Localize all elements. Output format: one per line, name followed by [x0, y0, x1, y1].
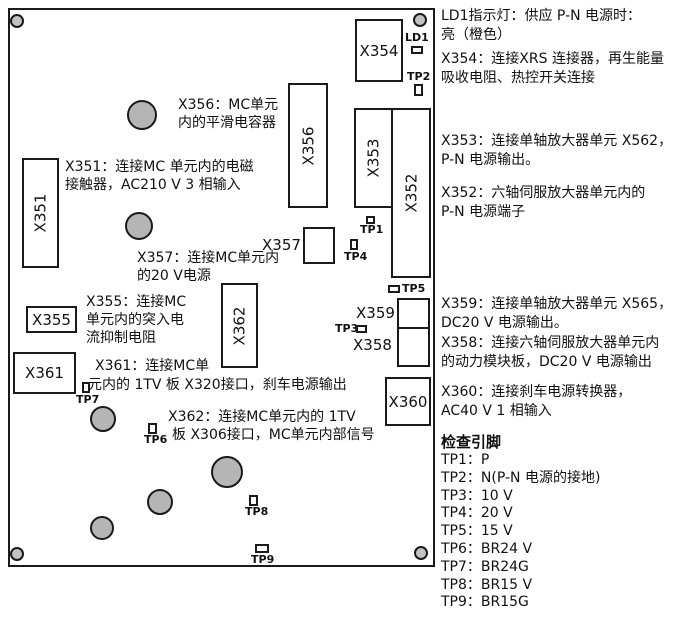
connector-x357-box	[303, 227, 335, 264]
annotation-x361-line1: X361：连接MC单	[95, 357, 209, 375]
mc-unit-board-diagram: X354 X356 X353 X352 X351 X355 X361 X362 …	[0, 0, 700, 625]
testpoint-tp2	[414, 84, 423, 96]
testpoint-tp6-label: TP6	[144, 433, 167, 446]
annotation-x357: X357：连接MC单元内 的20 V电源	[137, 249, 279, 285]
check-pin-item: TP4：20 V	[441, 505, 600, 523]
annotation-x362-line2: 板 X306接口，MC单元内部信号	[172, 426, 375, 444]
mounting-hole	[90, 406, 116, 432]
legend-note-x354: X354：连接XRS 连接器，再生能量 吸收电阻、热控开关连接	[441, 50, 700, 88]
annotation-x361-line2: 元内的 1TV 板 X320接口，刹车电源输出	[88, 376, 347, 394]
mounting-hole	[90, 516, 114, 540]
led-ld1-label: LD1	[405, 31, 429, 44]
led-ld1-indicator	[411, 46, 423, 54]
connector-x358-box	[397, 327, 430, 367]
connector-x356-label: X356	[299, 126, 317, 165]
connector-x352: X352	[391, 108, 431, 278]
connector-x353: X353	[354, 108, 393, 208]
corner-screw	[414, 546, 428, 560]
connector-x352-label: X352	[402, 174, 420, 213]
testpoint-tp8-label: TP8	[245, 505, 268, 518]
connector-x360-label: X360	[389, 393, 428, 411]
connector-x361: X361	[13, 352, 76, 394]
connector-x361-label: X361	[25, 364, 64, 382]
connector-x358-label: X358	[353, 336, 392, 354]
testpoint-tp5-label: TP5	[402, 282, 425, 295]
check-pin-item: TP6：BR24 V	[441, 541, 600, 559]
testpoint-tp9-label: TP9	[251, 553, 274, 566]
legend-note-x353: X353：连接单轴放大器单元 X562， P-N 电源输出。	[441, 132, 700, 170]
testpoint-tp1-label: TP1	[360, 223, 383, 236]
testpoint-tp4	[350, 239, 358, 250]
testpoint-tp3	[356, 325, 367, 333]
testpoint-tp2-label: TP2	[407, 70, 430, 83]
connector-x362-label: X362	[231, 306, 249, 345]
testpoint-tp9	[255, 544, 269, 553]
check-pin-item: TP7：BR24G	[441, 559, 600, 577]
mounting-hole	[125, 212, 153, 240]
legend-note-x359: X359：连接单轴放大器单元 X565， DC20 V 电源输出。	[441, 295, 700, 333]
annotation-x356: X356：MC单元 内的平滑电容器	[178, 96, 278, 132]
mounting-hole	[211, 456, 243, 488]
connector-x354: X354	[355, 19, 403, 82]
testpoint-tp3-label: TP3	[335, 322, 358, 335]
legend-note-x358: X358：连接六轴伺服放大器单元内 的动力模块板，DC20 V 电源输出	[441, 334, 700, 372]
mounting-hole	[147, 489, 173, 515]
connector-x351-label: X351	[32, 194, 50, 233]
check-pin-item: TP9：BR15G	[441, 594, 600, 612]
connector-x359-label: X359	[356, 304, 395, 322]
legend-note-x352: X352：六轴伺服放大器单元内的 P-N 电源端子	[441, 184, 700, 222]
check-pins-heading: 检查引脚	[441, 431, 501, 452]
check-pin-item: TP1：P	[441, 452, 600, 470]
corner-screw	[10, 14, 24, 28]
connector-x355: X355	[26, 306, 77, 333]
connector-x360: X360	[385, 377, 431, 426]
mounting-hole	[127, 100, 157, 130]
testpoint-tp5	[388, 285, 400, 293]
check-pin-item: TP8：BR15 V	[441, 577, 600, 595]
check-pin-item: TP5：15 V	[441, 523, 600, 541]
testpoint-tp7-label: TP7	[76, 393, 99, 406]
connector-x351: X351	[22, 158, 59, 268]
testpoint-tp4-label: TP4	[344, 250, 367, 263]
check-pins-list: TP1：P TP2：N(P-N 电源的接地) TP3：10 V TP4：20 V…	[441, 452, 600, 612]
check-pin-item: TP2：N(P-N 电源的接地)	[441, 470, 600, 488]
legend-note-x360: X360：连接刹车电源转换器， AC40 V 1 相输入	[441, 383, 700, 421]
legend-note-ld1: LD1指示灯：供应 P-N 电源时： 亮（橙色）	[441, 7, 700, 45]
annotation-x362-line1: X362：连接MC单元内的 1TV	[168, 408, 356, 426]
check-pin-item: TP3：10 V	[441, 488, 600, 506]
corner-screw	[413, 13, 427, 27]
corner-screw	[10, 547, 24, 561]
connector-x362: X362	[221, 283, 258, 368]
connector-x353-label: X353	[365, 139, 383, 178]
annotation-x351: X351：连接MC 单元内的电磁 接触器，AC210 V 3 相输入	[65, 158, 254, 194]
connector-x354-label: X354	[360, 42, 399, 60]
connector-x355-label: X355	[32, 311, 71, 329]
annotation-x355: X355：连接MC 单元内的突入电 流抑制电阻	[86, 293, 186, 347]
connector-x356: X356	[288, 83, 328, 208]
connector-x359-box	[397, 298, 430, 329]
